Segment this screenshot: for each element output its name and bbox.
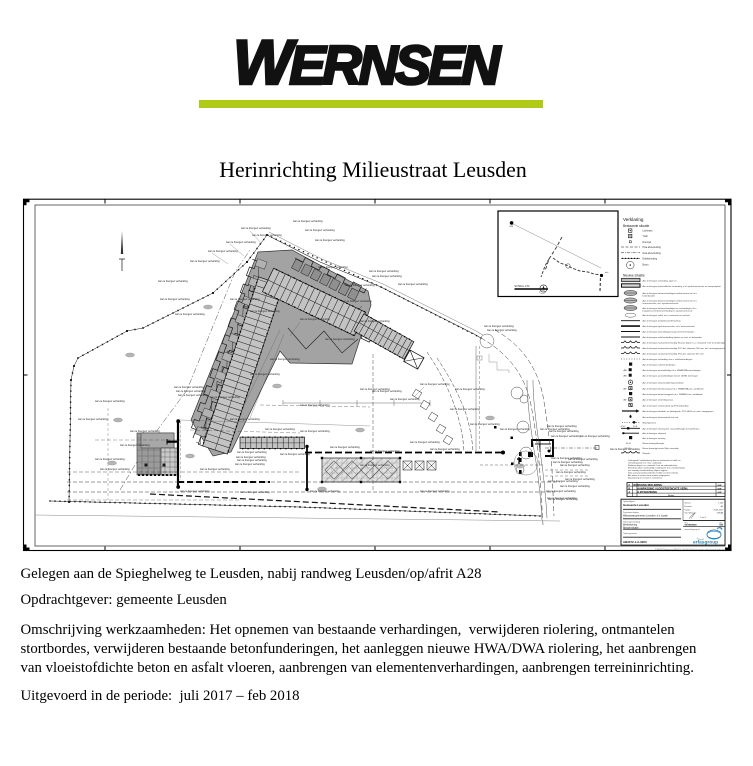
svg-text:Aan te brengen omvang: Aan te brengen omvang	[643, 437, 667, 440]
svg-text:Lichtmast: Lichtmast	[643, 230, 653, 233]
svg-text:Aan te brengen verharding: Aan te brengen verharding	[369, 270, 399, 273]
svg-text:Aan te brengen verharding: Aan te brengen verharding	[342, 300, 372, 303]
svg-text:Aan te brengen raamwerkverhard: Aan te brengen raamwerkverharding PVC-be…	[643, 353, 704, 356]
svg-text:Aan te brengen verharding: Aan te brengen verharding	[241, 227, 271, 230]
svg-text:hoogteverschil betonverharding: hoogteverschil betonverharding en opslui…	[643, 310, 694, 313]
svg-text:Aan te brengen verkeersbord op: Aan te brengen verkeersbord op RVV-bebor…	[643, 404, 690, 407]
svg-text:Aan te brengen ontwerp-bet. ma: Aan te brengen ontwerp-bet. maaiveldhoog…	[643, 427, 701, 430]
svg-text:Aan te brengen verharding: Aan te brengen verharding	[200, 468, 230, 471]
svg-text:Rimpels: Rimpels	[643, 453, 651, 455]
svg-text:Aan te brengen verharding: Aan te brengen verharding	[130, 430, 160, 433]
svg-text:Aan te brengen verharding: Aan te brengen verharding	[250, 373, 280, 376]
svg-text:Tekeningnummer: Tekeningnummer	[623, 533, 637, 535]
svg-text:inritconstructie, incl. opslui: inritconstructie, incl. opsluitconstruct…	[643, 302, 680, 305]
svg-text:WIJZIGING RIOLERING: WIJZIGING RIOLERING	[633, 483, 662, 487]
svg-text:47.04: 47.04	[626, 443, 631, 445]
svg-text:Aan te brengen verharding: Aan te brengen verharding	[318, 266, 348, 269]
svg-text:Datum: Datum	[685, 508, 691, 511]
svg-text:Aan te brengen verharding: Aan te brengen verharding	[560, 464, 590, 467]
svg-text:Aan te brengen aansluitleiding: Aan te brengen aansluitleidingen boven 1…	[643, 375, 699, 378]
svg-text:Aan te brengen verharding: Aan te brengen verharding	[240, 491, 270, 494]
svg-text:Aan te brengen verharding: Aan te brengen verharding	[500, 428, 530, 431]
svg-text:Aan te brengen afspraak: Aan te brengen afspraak	[643, 432, 667, 435]
svg-text:A: A	[629, 491, 631, 494]
svg-text:Aan te brengen verharding: Aan te brengen verharding	[160, 298, 190, 301]
svg-text:Aan te brengen asfaltverhardin: Aan te brengen asfaltverhardingen	[643, 364, 677, 367]
svg-text:Aan te brengen verharding: Aan te brengen verharding	[410, 441, 440, 444]
svg-text:Dwa afvoerleiding: Dwa afvoerleiding	[643, 252, 662, 255]
svg-text:Aan te brengen verharding: Aan te brengen verharding	[293, 220, 323, 223]
svg-text:Aan te brengen verharding: Aan te brengen verharding	[208, 250, 238, 253]
svg-text:Aan te brengen verharding: Aan te brengen verharding	[210, 396, 240, 399]
svg-text:29-03-2017: 29-03-2017	[713, 509, 723, 511]
svg-text:Aan te brengen verharding: Aan te brengen verharding	[390, 398, 420, 401]
svg-text:AANPASSING VLOEISTOFDICHTE VER: AANPASSING VLOEISTOFDICHTE VERH.	[637, 486, 688, 490]
svg-text:Aan te brengen verharding: Aan te brengen verharding	[330, 446, 360, 449]
svg-text:Aan te brengen verharding: Aan te brengen verharding	[398, 283, 428, 286]
svg-text:Aan te brengen verharding: Aan te brengen verharding	[237, 459, 267, 462]
svg-text:Aan te brengen betonverharding: Aan te brengen betonverhardingen en verh…	[643, 307, 698, 310]
svg-text:Aan te brengen verharding: Aan te brengen verharding	[372, 275, 402, 278]
svg-text:Aan te brengen verharding, typ: Aan te brengen verharding, type C0	[643, 279, 678, 282]
svg-text:Aan te brengen boomkranspaal t: Aan te brengen boomkranspaal t.b.v. HWA/…	[643, 388, 705, 391]
svg-text:Aan te brengen verharding: Aan te brengen verharding	[190, 260, 220, 263]
svg-text:Aan te brengen verharding: Aan te brengen verharding	[360, 464, 390, 467]
svg-text:Aan te brengen betonverharding: Aan te brengen betonverhardingen onderco…	[643, 300, 698, 303]
svg-text:1 van 1: 1 van 1	[700, 517, 706, 519]
svg-text:Aan te brengen verharding: Aan te brengen verharding	[235, 463, 265, 466]
svg-text:Aan te brengen verharding: Aan te brengen verharding	[345, 284, 375, 287]
svg-text:Aan te brengen verharding: Aan te brengen verharding	[420, 490, 450, 493]
svg-text:Projectomschrijving: Projectomschrijving	[623, 511, 639, 514]
svg-text:Aan te brengen verharding: Aan te brengen verharding	[484, 325, 514, 328]
svg-text:Aan te brengen verharding: Aan te brengen verharding	[547, 497, 577, 500]
svg-text:SCHAAL 1:50: SCHAAL 1:50	[515, 285, 530, 288]
svg-text:Aan te brengen verharding: Aan te brengen verharding	[310, 490, 340, 493]
svg-text:Aan te brengen verharding: Aan te brengen verharding	[325, 338, 355, 341]
svg-text:www.erfasgroup.nl: www.erfasgroup.nl	[685, 529, 700, 531]
svg-text:Aan te brengen verharding: Aan te brengen verharding	[553, 461, 583, 464]
svg-text:Bestaande situatie: Bestaande situatie	[623, 224, 649, 228]
svg-text:Aan te brengen verharding: Aan te brengen verharding	[270, 358, 300, 361]
svg-text:Trafo: Trafo	[643, 235, 649, 238]
svg-text:AW: AW	[624, 388, 627, 391]
svg-text:P:\AB3472\tekeningen\AB3472-1-: P:\AB3472\tekeningen\AB3472-1-A-0003 def…	[655, 548, 726, 551]
svg-text:Aan te brengen verharding: Aan te brengen verharding	[158, 280, 188, 283]
svg-text:Aan te brengen verharding: Aan te brengen verharding	[300, 318, 330, 321]
svg-text:Aan te brengen verharding: Aan te brengen verharding	[78, 418, 108, 421]
svg-text:Tekeningomschrijving: Tekeningomschrijving	[623, 522, 640, 524]
svg-text:Nieuwe situatie: Nieuwe situatie	[623, 273, 645, 277]
svg-text:Aan te brengen verharding d.m.: Aan te brengen verharding d.m.v. asfaltv…	[643, 358, 694, 361]
svg-text:Aan te brengen verharding: Aan te brengen verharding	[230, 298, 260, 301]
svg-text:Aan te brengen verharding: Aan te brengen verharding	[250, 310, 280, 313]
svg-text:Aan te brengen verharding: Aan te brengen verharding	[176, 390, 206, 393]
svg-text:47.04: 47.04	[621, 426, 625, 428]
svg-text:Drempel: Drempel	[643, 241, 652, 244]
svg-text:Aan te brengen verharding: Aan te brengen verharding	[280, 453, 310, 456]
svg-text:Schaal: Schaal	[685, 502, 691, 504]
svg-text:Aan te brengen asfalt, incl. c: Aan te brengen asfalt, incl. constructie…	[643, 314, 691, 317]
svg-text:Erfafscheiding: Erfafscheiding	[643, 258, 658, 261]
svg-text:Aan te brengen verharding: Aan te brengen verharding	[95, 458, 125, 461]
svg-text:Aan te brengen verharding: Aan te brengen verharding	[175, 313, 205, 316]
svg-text:Aan te brengen verharding: Aan te brengen verharding	[455, 388, 485, 391]
svg-text:Verklaring: Verklaring	[623, 217, 644, 222]
svg-text:Aan te brengen verharding: Aan te brengen verharding	[100, 468, 130, 471]
svg-text:Aan te brengen verharding: Aan te brengen verharding	[230, 418, 260, 421]
svg-text:Aan te brengen verharding: Aan te brengen verharding	[470, 423, 500, 426]
svg-text:1:200: 1:200	[718, 502, 723, 504]
svg-text:erfasgroup: erfasgroup	[693, 540, 718, 546]
svg-text:Aan te brengen verharding: Aan te brengen verharding	[315, 239, 345, 242]
svg-text:AW: AW	[624, 369, 627, 372]
svg-text:Aan te brengen verlichtingsmas: Aan te brengen verlichtingsmast	[643, 399, 674, 402]
svg-text:betonbanden: betonbanden	[643, 295, 656, 298]
svg-text:Aan te brengen verharding: Aan te brengen verharding	[226, 241, 256, 244]
svg-text:Aan te brengen trottoirband 13: Aan te brengen trottoirband 13/15x25cm	[643, 320, 682, 323]
svg-text:Aan te brengen boom-kraagpaal: Aan te brengen boom-kraagpaal t.b.v. DWA…	[643, 393, 704, 396]
svg-text:Aan te brengen verharding: Aan te brengen verharding	[252, 234, 282, 237]
svg-text:Aan te brengen vloeistofdichte: Aan te brengen vloeistofdichte verhardin…	[643, 285, 722, 288]
svg-text:Aan te brengen verharding: Aan te brengen verharding	[370, 450, 400, 453]
svg-text:Aan te brengen afscheidingen l: Aan te brengen afscheidingen langs terre…	[643, 331, 696, 334]
svg-text:Milieustraat gemeente Leusden: Milieustraat gemeente Leusden t.b.v. loc…	[623, 515, 668, 518]
svg-text:Aan te brengen verharding: Aan te brengen verharding	[551, 435, 581, 438]
svg-text:Aan te brengen raamwerkverhard: Aan te brengen raamwerkverharding RC-bet…	[643, 342, 726, 345]
svg-text:AW: AW	[624, 399, 627, 402]
svg-text:Aan te brengen betonverharding: Aan te brengen betonverhardingen onderco…	[643, 292, 698, 295]
svg-text:Aan te brengen verharding: Aan te brengen verharding	[560, 485, 590, 488]
svg-text:Aan te brengen aansluitleiding: Aan te brengen aansluitleiding t.b.v. HW…	[643, 369, 702, 372]
svg-text:Aan te brengen verharding: Aan te brengen verharding	[580, 435, 610, 438]
svg-text:(47.04): (47.04)	[625, 448, 631, 450]
svg-text:Aan te brengen verharding: Aan te brengen verharding	[548, 480, 578, 483]
svg-text:Aan te brengen verharding: Aan te brengen verharding	[95, 400, 125, 403]
svg-text:Aan te brengen verharding: Aan te brengen verharding	[547, 425, 577, 428]
svg-text:Aan te brengen afvalverwijderi: Aan te brengen afvalverwijderingsinstall…	[643, 382, 685, 385]
svg-text:Aan te brengen verharding: Aan te brengen verharding	[300, 404, 330, 407]
svg-text:Aan te brengen afvalbak- en le: Aan te brengen afvalbak- en leidingwerk,…	[643, 410, 715, 413]
svg-text:Aan te brengen verharding: Aan te brengen verharding	[300, 430, 330, 433]
svg-text:Formaat: Formaat	[685, 505, 693, 508]
svg-text:Aan te brengen verharding: Aan te brengen verharding	[174, 386, 204, 389]
svg-text:Aan te brengen opsluitconstruc: Aan te brengen opsluitconstructies t.b.v…	[643, 325, 696, 328]
svg-text:Aan te brengen uitstroombak va: Aan te brengen uitstroombak van inrit	[643, 416, 679, 419]
svg-text:Aan te brengen verharding: Aan te brengen verharding	[430, 448, 460, 451]
svg-text:Aan te brengen verharding: Aan te brengen verharding	[120, 444, 150, 447]
svg-text:47.04: 47.04	[633, 426, 637, 428]
svg-text:Matenplannen: Matenplannen	[643, 421, 657, 424]
svg-text:Aan te brengen verharding: Aan te brengen verharding	[549, 430, 579, 433]
svg-text:Maatvoering in het werk te con: Maatvoering in het werk te controleren.	[628, 477, 663, 480]
svg-text:Aan te brengen verharding: Aan te brengen verharding	[178, 394, 208, 397]
svg-text:Aan te brengen verharding: Aan te brengen verharding	[180, 490, 210, 493]
svg-text:Gemeente Leusden: Gemeente Leusden	[623, 503, 649, 507]
svg-text:Nieuw waterpeilhoogte: Nieuw waterpeilhoogte	[643, 442, 665, 445]
svg-text:Aan te brengen verharding: Aan te brengen verharding	[420, 383, 450, 386]
svg-text:A.28 WIJZIGING: A.28 WIJZIGING	[637, 490, 657, 494]
svg-text:afrit: afrit	[605, 271, 609, 274]
svg-text:Aan te brengen asfaltverhardin: Aan te brengen asfaltverharding rijbaan …	[643, 336, 703, 339]
svg-text:A0: A0	[721, 505, 723, 508]
svg-text:GW.AB: GW.AB	[717, 512, 724, 515]
svg-text:Aan te brengen verharding: Aan te brengen verharding	[372, 390, 402, 393]
svg-text:Werktekening: Werktekening	[623, 524, 638, 527]
svg-text:Aan te brengen verharding: Aan te brengen verharding	[360, 320, 390, 323]
svg-text:Boom: Boom	[643, 265, 649, 267]
svg-text:Hwa afvoerleiding: Hwa afvoerleiding	[643, 246, 662, 249]
svg-text:Aan te brengen verharding: Aan te brengen verharding	[556, 471, 586, 474]
svg-text:Aan te brengen verharding: Aan te brengen verharding	[450, 408, 480, 411]
svg-text:Nieuw bouwrijp niveau Rijks ni: Nieuw bouwrijp niveau Rijks niveaulijn	[643, 448, 680, 450]
svg-text:Aan te brengen verharding: Aan te brengen verharding	[305, 229, 335, 232]
svg-text:Aan te brengen raamwerkverhard: Aan te brengen raamwerkverharding PVC-be…	[643, 347, 727, 350]
svg-text:Aan te brengen verharding: Aan te brengen verharding	[487, 329, 517, 332]
svg-text:AW: AW	[624, 375, 627, 378]
svg-text:Aan te brengen verharding: Aan te brengen verharding	[265, 428, 295, 431]
svg-text:Aan te brengen verharding: Aan te brengen verharding	[237, 451, 267, 454]
svg-text:Nieuwe situatie: Nieuwe situatie	[623, 526, 639, 529]
svg-text:AB3472-1-A-0003: AB3472-1-A-0003	[623, 540, 647, 544]
svg-text:Status: Status	[668, 494, 675, 497]
svg-text:Aan te brengen verharding: Aan te brengen verharding	[568, 458, 598, 461]
svg-text:Aan te brengen verharding: Aan te brengen verharding	[546, 490, 576, 493]
